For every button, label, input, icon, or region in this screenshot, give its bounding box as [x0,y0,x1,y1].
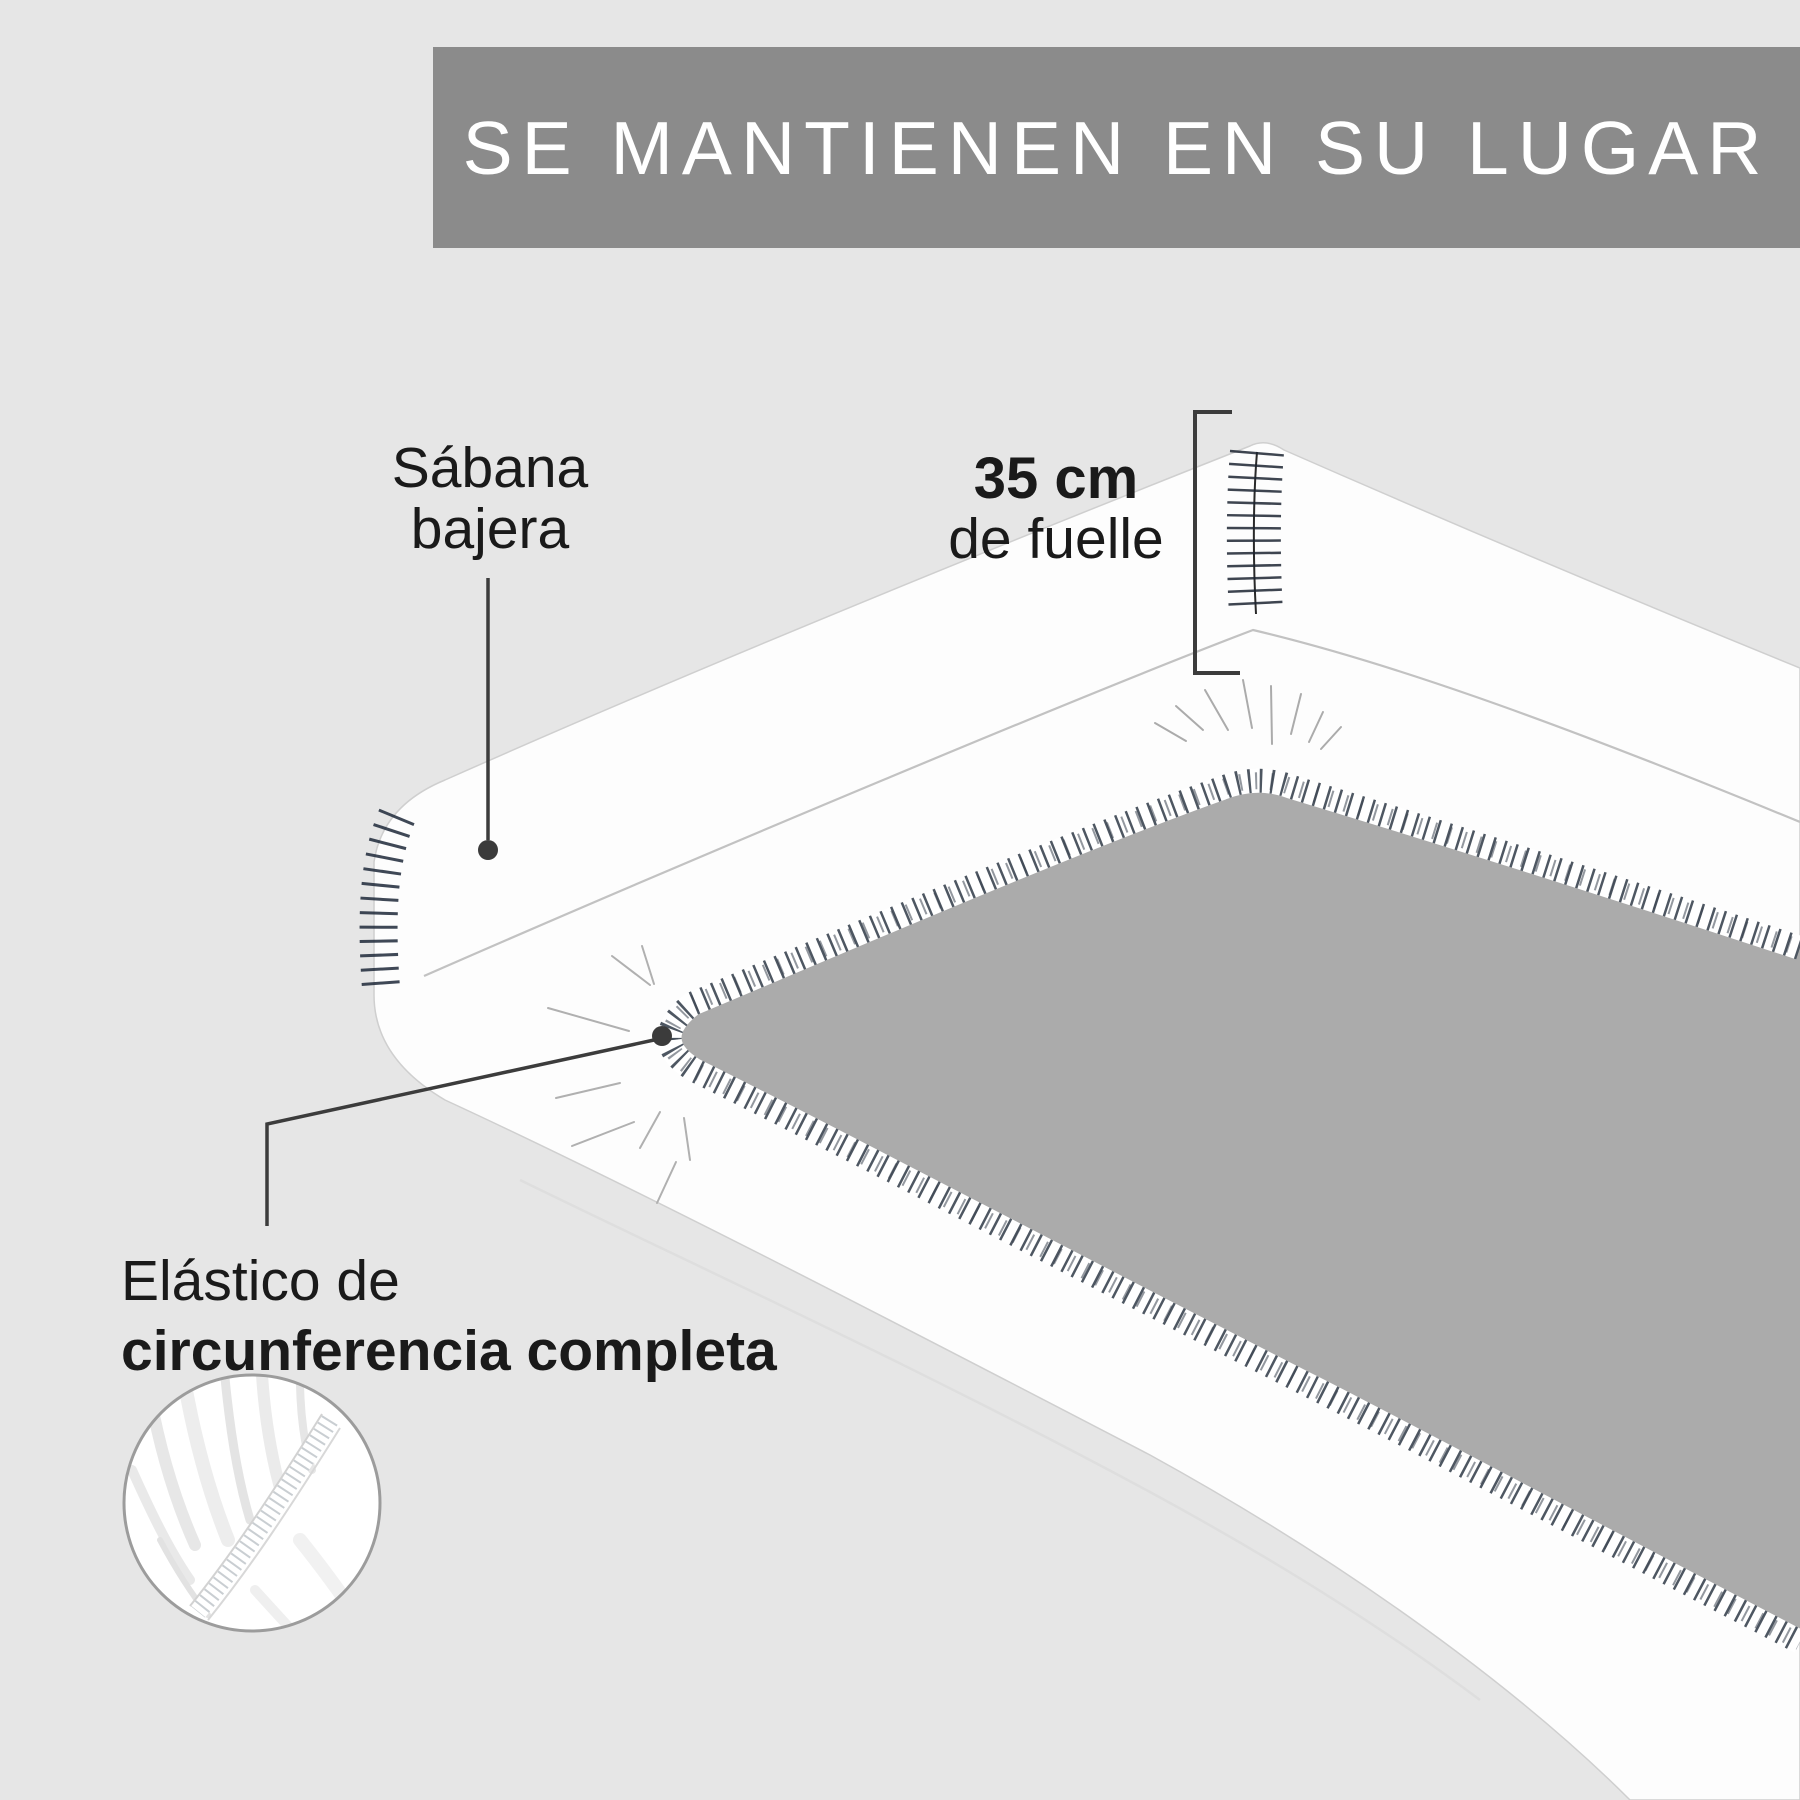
banner: SE MANTIENEN EN SU LUGAR [433,47,1800,248]
label-fitted-sheet-line2: bajera [330,499,650,560]
infographic-canvas: SE MANTIENEN EN SU LUGAR Sábana bajera 3… [0,0,1800,1800]
mattress-illustration [0,0,1800,1800]
gusset-depth-value: 35 cm [876,448,1236,509]
label-fitted-sheet: Sábana bajera [330,438,650,560]
callout-dot-sheet [478,840,498,860]
label-fitted-sheet-line1: Sábana [330,438,650,499]
label-elastic: Elástico de circunferencia completa [121,1246,777,1386]
label-gusset-depth: 35 cm de fuelle [876,448,1236,570]
label-elastic-line2: circunferencia completa [121,1316,777,1386]
fabric-detail-circle [124,1375,380,1652]
label-elastic-line1: Elástico de [121,1246,777,1316]
gusset-depth-caption: de fuelle [876,509,1236,570]
callout-dot-elastic [652,1026,672,1046]
banner-title: SE MANTIENEN EN SU LUGAR [463,105,1771,191]
